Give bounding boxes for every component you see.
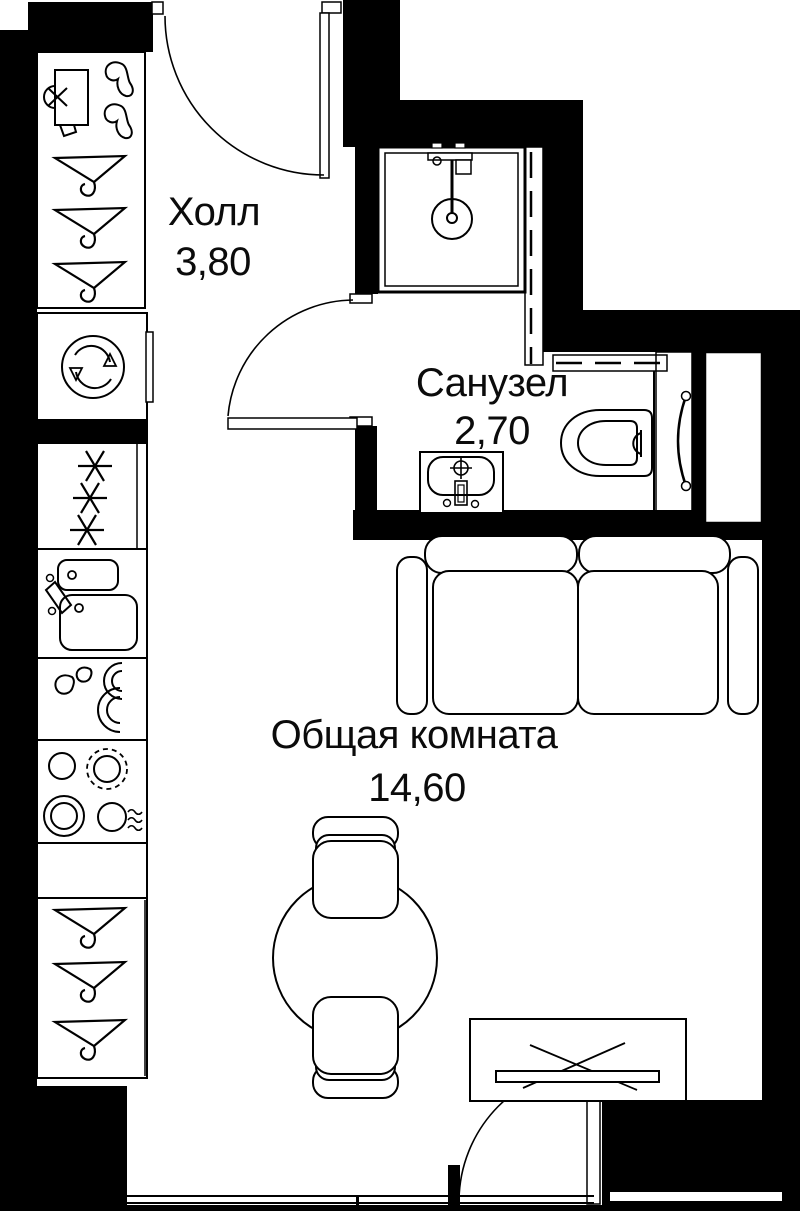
kitchen-counter: [37, 843, 147, 898]
dining-table-set: [273, 817, 437, 1098]
room-label-bathroom: Санузел: [392, 361, 592, 405]
shower-mixer-icon: [428, 153, 472, 160]
room-area-hall: 3,80: [113, 240, 313, 284]
shoe-box: [55, 70, 88, 125]
towel-rail: [656, 352, 692, 512]
room-area-living: 14,60: [217, 766, 617, 810]
floor-plan: Холл 3,80 Санузел 2,70 Общая комната 14,…: [0, 0, 800, 1211]
stove: [37, 740, 147, 843]
room-area-bathroom: 2,70: [392, 409, 592, 453]
duct-shaft: [705, 352, 762, 523]
shower-cabin: [378, 143, 525, 292]
entrance-door: [152, 2, 341, 178]
room-label-hall: Холл: [114, 190, 314, 234]
chair: [313, 817, 398, 918]
wardrobe-2: [37, 898, 147, 1078]
washing-machine: [37, 313, 153, 420]
dishwasher: [37, 658, 147, 740]
bathroom-sink: [420, 452, 503, 513]
plan-drawing: [0, 0, 800, 1211]
bathroom-door: [228, 294, 372, 429]
chair: [313, 997, 398, 1098]
sofa: [397, 536, 758, 714]
refrigerator: [37, 443, 147, 549]
room-label-living: Общая комната: [214, 713, 614, 757]
kitchen-sink: [37, 549, 147, 658]
window: [126, 1195, 594, 1205]
desk: [470, 1019, 686, 1101]
